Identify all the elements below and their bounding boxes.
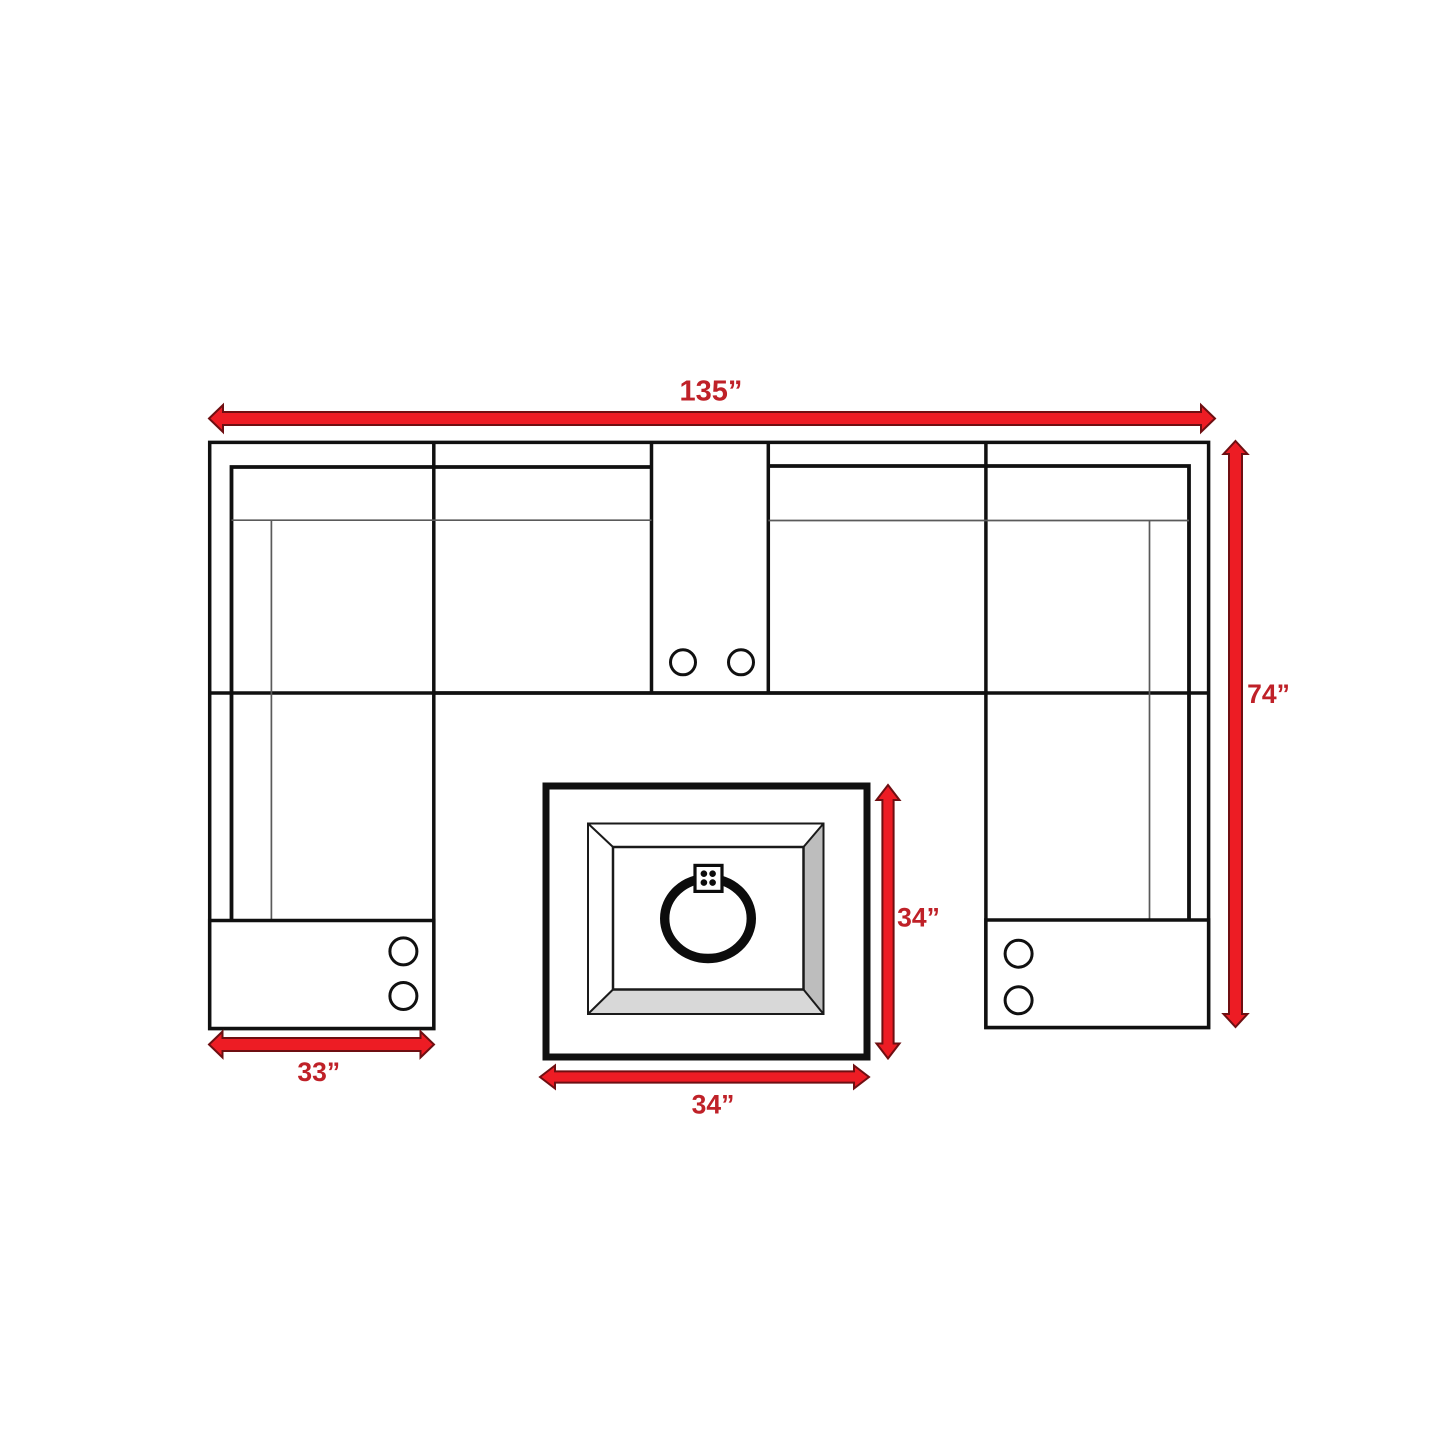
- svg-text:34”: 34”: [897, 903, 940, 933]
- svg-text:34”: 34”: [692, 1090, 735, 1120]
- svg-text:74”: 74”: [1247, 679, 1290, 709]
- svg-text:33”: 33”: [297, 1057, 340, 1087]
- svg-text:135”: 135”: [680, 376, 743, 408]
